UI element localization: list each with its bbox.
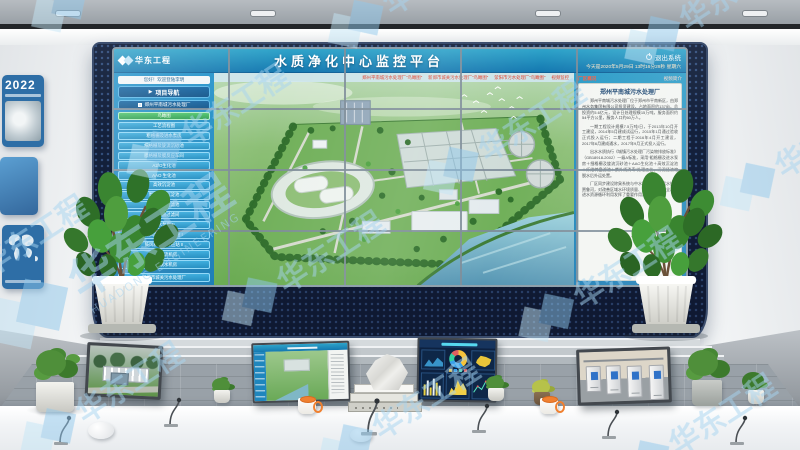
equipment-cabinet xyxy=(649,365,665,401)
map-chart xyxy=(475,354,493,368)
potted-plant-left xyxy=(48,152,198,342)
checkbox-icon xyxy=(138,103,142,107)
dashboard-map-tile xyxy=(471,350,495,370)
office-building xyxy=(341,101,371,125)
area-chart xyxy=(424,356,443,366)
ceiling-light xyxy=(250,10,276,17)
mini-screen-info-panel xyxy=(327,350,348,400)
wall-plaque-blue xyxy=(0,157,38,215)
plaque-photo xyxy=(5,101,41,141)
exit-label: 退出系统 xyxy=(655,52,681,62)
plant-group-button[interactable]: 郑州平南城污水处理厂 xyxy=(118,100,210,110)
quick-link-3[interactable]: 视频监控 xyxy=(551,75,569,81)
equipment-cabinet xyxy=(606,365,622,395)
ceiling-light xyxy=(742,10,768,17)
donut-chart xyxy=(449,350,467,368)
exit-system-button[interactable]: 退出系统 xyxy=(646,52,681,62)
dashboard-screen xyxy=(416,337,497,402)
quick-link-2[interactable]: 荥阳市污水处理厂“鸟瞰图” xyxy=(494,75,545,81)
small-plant-pot xyxy=(488,388,504,401)
world-map-icon xyxy=(5,228,41,272)
right-bush-foliage xyxy=(742,372,764,390)
framed-picture-facility xyxy=(85,342,164,400)
equipment-cabinet xyxy=(586,366,602,393)
info-paragraph-0: 郑州平南城污水处理厂位于郑州市平南新区，由郑州水务集团有限公司投资建设，占地面积… xyxy=(582,98,678,121)
screen-logo: 华东工程 xyxy=(114,49,190,72)
arrow-icon: ▶ xyxy=(149,89,153,95)
screen-header: 华东工程 水质净化中心监控平台 退出系统 今天是2020年5月29日 13时16… xyxy=(114,49,686,73)
equipment-cabinet xyxy=(627,365,643,398)
logo-diamond-icon xyxy=(124,56,134,66)
microphone xyxy=(52,414,76,446)
plaque-caption-line xyxy=(5,280,41,283)
microphone xyxy=(162,396,186,428)
mug xyxy=(298,398,316,414)
sidebar-item-0[interactable]: 鸟瞰图 xyxy=(118,112,210,120)
decor-egg xyxy=(88,422,114,439)
aerial-plant-render xyxy=(214,73,574,285)
sidebar-item-2[interactable]: 粗格栅及进水泵房 xyxy=(118,132,210,140)
quick-link-0[interactable]: 郑州平南城污水处理厂“鸟瞰图” xyxy=(362,75,422,81)
aerial-view: 郑州平南城污水处理厂“鸟瞰图”新郑市城关污水处理厂“鸟瞰图”荥阳市污水处理厂“鸟… xyxy=(214,73,574,285)
dashboard-area-chart-tile xyxy=(421,349,445,369)
plaque-year-label: 2022 xyxy=(5,78,41,92)
mini-screen-tanks xyxy=(284,359,310,372)
sidebar-item-1[interactable]: 工艺流程图 xyxy=(118,122,210,130)
mini-monitor-screen xyxy=(251,341,351,404)
mountain-area-chart xyxy=(449,379,467,395)
quick-links-bar: 郑州平南城污水处理厂“鸟瞰图”新郑市城关污水处理厂“鸟瞰图”荥阳市污水处理厂“鸟… xyxy=(214,73,574,82)
info-tabs: 厂区概况 视频简介 xyxy=(578,75,682,83)
tab-overview[interactable]: 厂区概况 xyxy=(578,76,596,82)
ceiling-light xyxy=(535,10,561,17)
mini-screen-aerial xyxy=(265,350,328,401)
microphone xyxy=(728,414,752,446)
nav-button-label: 项目导航 xyxy=(155,88,179,97)
microphone xyxy=(358,396,384,436)
right-plant-foliage xyxy=(688,350,718,376)
right-plant-pot xyxy=(692,380,722,406)
quick-link-1[interactable]: 新郑市城关污水处理厂“鸟瞰图” xyxy=(428,75,488,81)
framed-picture-cabinets xyxy=(576,346,672,405)
right-bush-pot xyxy=(748,390,764,404)
small-plant-pot xyxy=(214,390,230,403)
wall-plaque-2022: 2022 xyxy=(2,75,44,147)
desk-plant-pot xyxy=(36,382,74,412)
microphone xyxy=(600,408,624,440)
picture-path xyxy=(88,386,158,393)
power-icon xyxy=(646,54,652,60)
desk-plant-foliage xyxy=(36,350,66,376)
logo-text: 华东工程 xyxy=(135,55,171,66)
ceiling-panel xyxy=(0,0,800,24)
mug xyxy=(540,398,558,414)
picture-equipment xyxy=(110,372,129,385)
header-right: 退出系统 今天是2020年5月29日 13时16分29秒 星期六 xyxy=(528,49,686,72)
plant-info-title: 郑州平南城污水处理厂 xyxy=(582,87,678,96)
sidebar-item-3[interactable]: 细格栅及旋流沉砂池 xyxy=(118,142,210,150)
microphone xyxy=(470,402,494,434)
platform-title: 水质净化中心监控平台 xyxy=(190,49,528,72)
bar-chart xyxy=(424,377,441,395)
tab-video[interactable]: 视频简介 xyxy=(664,76,682,82)
dashboard-mountain-chart-tile xyxy=(445,373,469,399)
plant-button-label: 郑州平南城污水处理厂 xyxy=(145,102,191,108)
potted-plant-right xyxy=(592,152,742,342)
plaque-subtitle-line xyxy=(5,94,41,97)
info-paragraph-1: 一期工程设计规模7.5万吨/日，于2013年10月开工建设，2014年5月建成试… xyxy=(582,124,678,147)
chart-legend xyxy=(449,369,467,372)
project-nav-button[interactable]: ▶ 项目导航 xyxy=(118,86,210,98)
ceiling-light xyxy=(55,10,81,17)
welcome-text: 您好！欢迎登陆李明 xyxy=(118,76,210,84)
wall-plaque-worldmap xyxy=(2,225,44,289)
datetime-text: 今天是2020年5月29日 13时16分29秒 星期六 xyxy=(586,63,681,70)
exhibition-room-scene: 2022 华东工程 xyxy=(0,0,800,450)
